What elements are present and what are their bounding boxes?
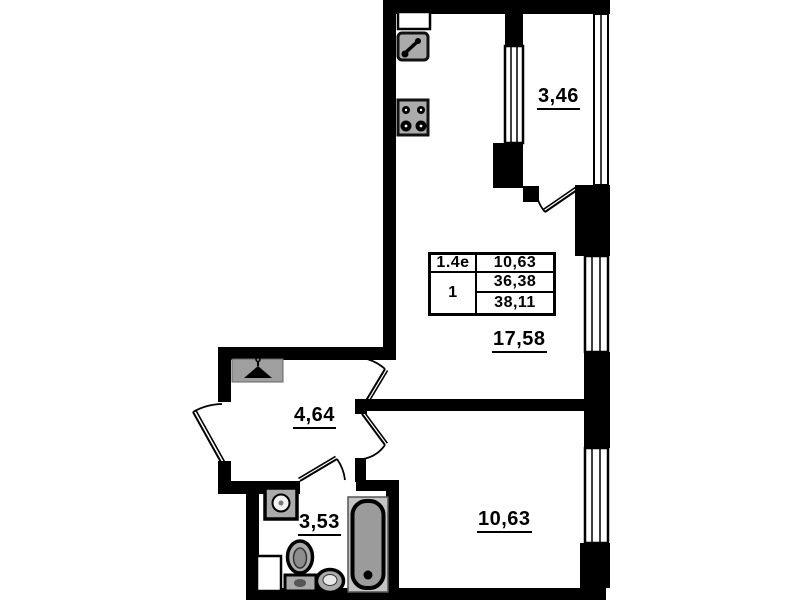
apartment-area-value: 36,38	[477, 273, 553, 293]
total-area-value: 38,11	[477, 293, 553, 313]
area-label-bathroom: 3,53	[298, 512, 341, 536]
apartment-info-table: 1.4e 10,63 1 36,38 38,11	[428, 252, 556, 316]
living-area-value: 10,63	[477, 255, 553, 273]
floorplan-canvas: 3,46 17,58 4,64 3,53 10,63 1.4e 10,63 1 …	[0, 0, 799, 600]
door-swing-icon-balcony	[538, 188, 577, 213]
floorplan-drawing	[0, 0, 799, 600]
wardrobe-hanger-icon	[232, 358, 283, 383]
door-swing-icon-entrance	[193, 404, 225, 464]
area-label-bedroom: 10,63	[477, 509, 532, 533]
door-swing-icon-bathroom	[299, 456, 346, 481]
window-icon-kitchen-balcony	[505, 46, 523, 143]
duct-icon	[257, 556, 281, 591]
washbasin-icon	[317, 570, 344, 593]
window-icon-balcony-glazing	[594, 14, 608, 185]
room-count: 1	[431, 273, 477, 313]
apartment-type: 1.4e	[431, 255, 477, 273]
door-swing-icon-bedroom	[362, 412, 387, 459]
washing-machine-icon	[265, 488, 297, 519]
window-icon-living	[585, 256, 608, 352]
area-label-hallway: 4,64	[293, 405, 336, 429]
toilet-icon	[285, 541, 316, 591]
fixtures	[232, 12, 430, 593]
window-icon-bedroom	[585, 448, 608, 543]
kitchen-sink-icon	[398, 33, 428, 60]
area-label-balcony: 3,46	[537, 86, 580, 110]
kitchen-cabinet-icon	[398, 12, 430, 29]
bathtub-icon	[348, 497, 388, 592]
area-label-living-kitchen: 17,58	[492, 329, 547, 353]
door-swing-icon-living	[363, 358, 388, 406]
stove-icon	[398, 100, 428, 135]
